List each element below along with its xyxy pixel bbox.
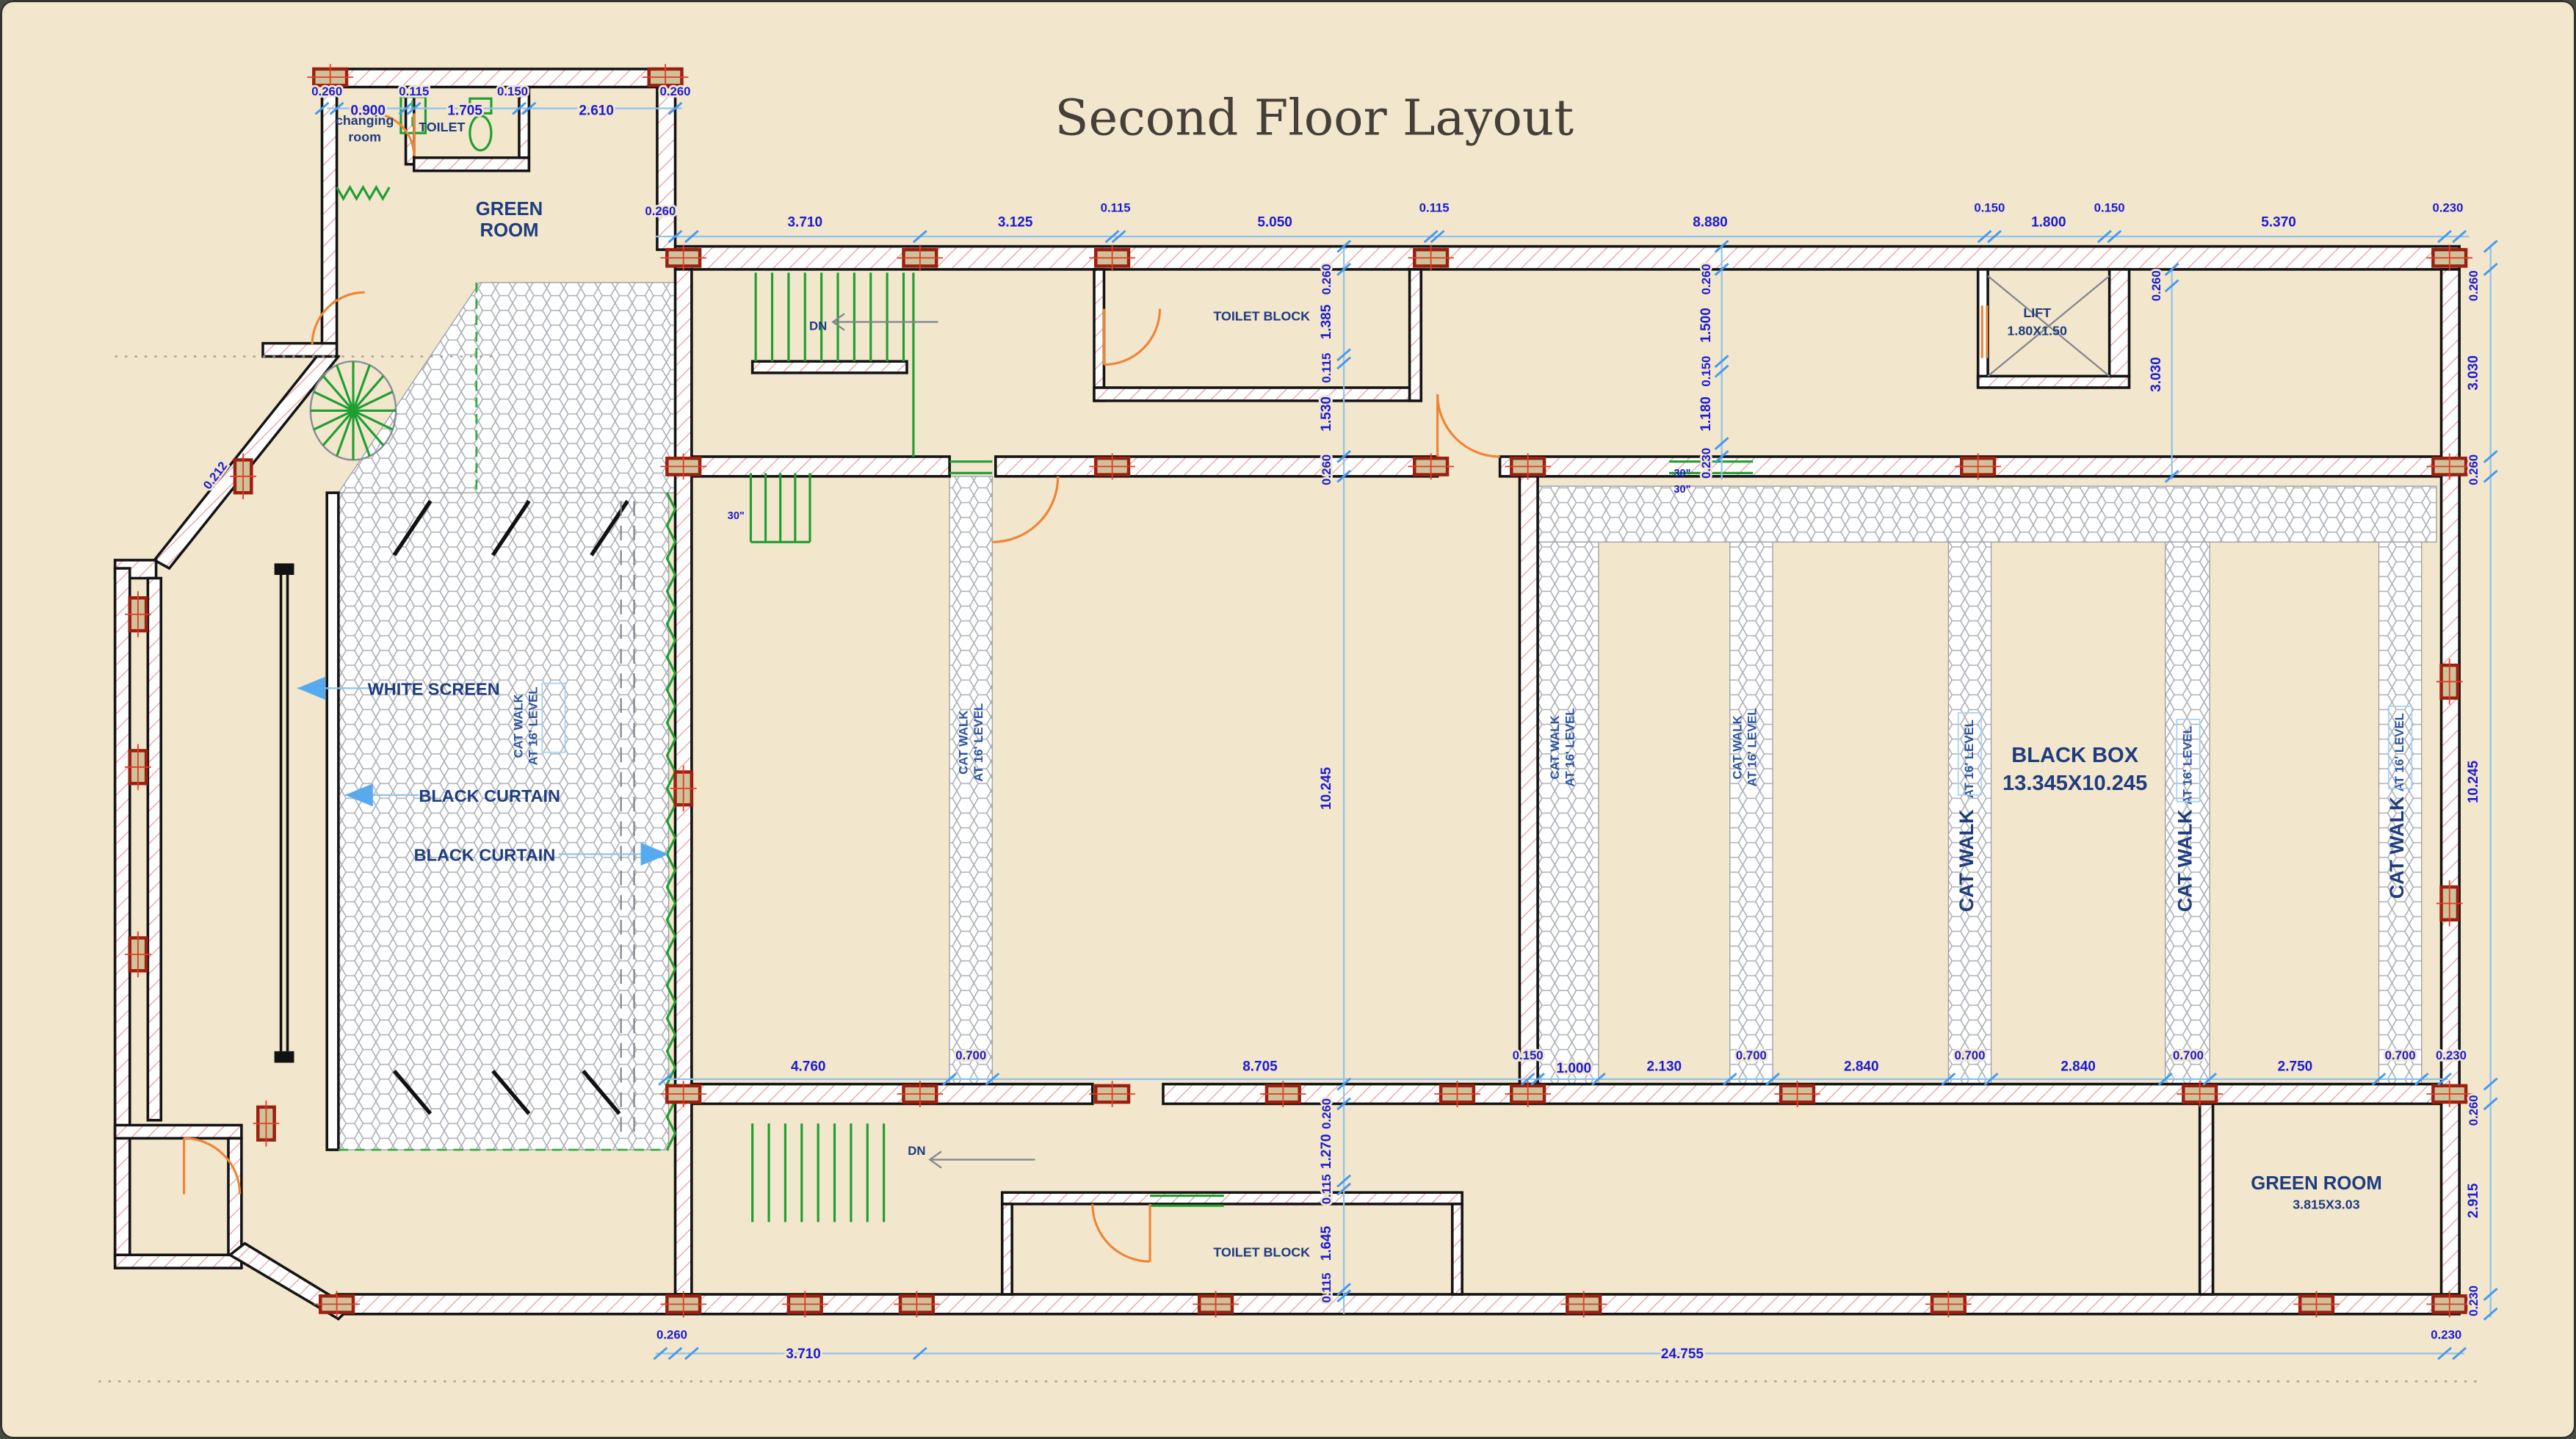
label-lift: LIFT	[2023, 305, 2051, 320]
dim-label: 5.050	[1257, 215, 1292, 231]
label-changing-room: changing	[336, 113, 394, 128]
dim-label: 0.260	[656, 1327, 687, 1341]
label-catwalk: CAT WALK	[511, 694, 525, 758]
label-riser: 30"	[1674, 484, 1690, 496]
dim-label: 0.230	[2433, 201, 2464, 215]
dim-label: 2.750	[2278, 1059, 2313, 1075]
dim-label: 2.915	[2466, 1183, 2481, 1218]
dim-label: 0.150	[1974, 201, 2005, 215]
dim-label: 5.370	[2261, 215, 2296, 231]
dim-label: 0.260	[1320, 1098, 1334, 1129]
dim-label: 0.700	[2385, 1048, 2416, 1062]
dim-label: 8.880	[1693, 215, 1728, 231]
dim-label: 3.030	[2149, 357, 2164, 392]
dim-label: 1.270	[1319, 1134, 1334, 1170]
dim-label: 0.230	[2431, 1327, 2461, 1341]
dim-label: 0.150	[1513, 1048, 1544, 1062]
catwalk-hatch-areas	[339, 283, 2436, 1150]
dim-label: 0.260	[1320, 454, 1334, 485]
label-catwalk-level: AT 16' LEVEL	[2392, 713, 2406, 791]
label-catwalk: CAT WALK	[2174, 809, 2196, 912]
dim-label: 4.760	[791, 1059, 826, 1075]
label-black-curtain: BLACK CURTAIN	[419, 786, 560, 805]
label-white-screen: WHITE SCREEN	[368, 679, 500, 698]
floor-plan: 0.260 0.900 0.115 1.705 0.150 2.610 0.26…	[0, 0, 2576, 1439]
label-riser: 30"	[1674, 468, 1690, 479]
dim-label: 0.230	[2436, 1048, 2467, 1062]
label-catwalk-level: AT 16' LEVEL	[1962, 719, 1976, 798]
label-catwalk: AT 16' LEVEL	[972, 703, 985, 782]
dim-label: 1.705	[447, 104, 482, 119]
label-toilet: TOILET	[419, 120, 465, 134]
dim-label: 0.115	[1320, 1272, 1334, 1302]
label-catwalk: CAT WALK	[2386, 796, 2408, 899]
label-catwalk: CAT WALK	[1548, 715, 1562, 779]
dim-label: 0.115	[1419, 201, 1450, 215]
dim-label: 0.260	[311, 84, 342, 98]
dim-label: 0.260	[645, 204, 676, 218]
label-green-room-top: ROOM	[480, 220, 539, 241]
drawing-sheet: 0.260 0.900 0.115 1.705 0.150 2.610 0.26…	[0, 0, 2576, 1439]
label-catwalk: AT 16' LEVEL	[1563, 708, 1577, 786]
dim-label: 1.385	[1319, 304, 1334, 339]
dim-label: 0.260	[2467, 454, 2481, 485]
dim-label: 0.230	[1699, 448, 1713, 479]
dim-label: 0.700	[1736, 1048, 1767, 1062]
dim-label: 0.700	[1954, 1048, 1985, 1062]
dim-label: 0.260	[1320, 264, 1334, 294]
dim-label: 10.245	[1319, 766, 1334, 810]
label-catwalk: CAT WALK	[957, 711, 971, 775]
staircase-mid-small	[750, 473, 810, 542]
label-lift-size: 1.80X1.50	[2007, 323, 2067, 338]
dim-label: 0.115	[1101, 201, 1131, 215]
label-green-room-top: GREEN	[476, 199, 543, 220]
label-toilet-block-bottom: TOILET BLOCK	[1213, 1244, 1310, 1259]
dim-label: 0.260	[2149, 270, 2163, 301]
staircase-bottom	[753, 1123, 884, 1222]
dim-label: 3.030	[2466, 355, 2481, 391]
label-catwalk: AT 16' LEVEL	[1745, 708, 1759, 786]
dim-label: 0.260	[660, 84, 691, 98]
dim-label: 24.755	[1661, 1346, 1704, 1362]
label-catwalk: CAT WALK	[1730, 715, 1744, 779]
label-green-room-bottom-size: 3.815X3.03	[2293, 1197, 2360, 1212]
dim-label: 0.230	[2467, 1286, 2481, 1316]
dim-label: 0.115	[399, 84, 429, 98]
dim-label: 0.700	[2173, 1048, 2204, 1062]
dim-label: 1.800	[2031, 215, 2066, 231]
label-green-room-bottom: GREEN ROOM	[2251, 1173, 2382, 1194]
label-down: DN	[809, 319, 827, 333]
dim-label: 1.530	[1319, 396, 1334, 432]
arrow-left-icon	[297, 677, 325, 700]
dim-label: 2.840	[2061, 1059, 2096, 1075]
label-toilet-block-top: TOILET BLOCK	[1213, 308, 1310, 323]
dim-label: 1.645	[1319, 1225, 1334, 1261]
dim-label: 0.115	[1320, 353, 1334, 383]
dim-label: 0.150	[1699, 356, 1713, 387]
dim-label: 0.260	[2467, 1095, 2481, 1126]
dim-label: 3.710	[787, 215, 822, 231]
dim-label: 1.500	[1698, 308, 1714, 343]
dim-label: 10.245	[2466, 760, 2481, 803]
dim-label: 0.260	[2467, 270, 2481, 301]
spiral-stair	[311, 361, 396, 460]
dim-label: 0.260	[1699, 264, 1713, 294]
dim-label: 1.000	[1557, 1061, 1592, 1076]
label-riser: 30"	[728, 510, 745, 522]
label-down: DN	[908, 1144, 925, 1158]
dim-label: 2.610	[579, 104, 614, 119]
label-catwalk-level: AT 16' LEVEL	[2180, 726, 2194, 805]
label-catwalk: AT 16' LEVEL	[527, 686, 540, 765]
dim-label: 2.840	[1844, 1059, 1879, 1075]
label-changing-room: room	[348, 129, 381, 144]
label-black-curtain: BLACK CURTAIN	[414, 845, 556, 864]
dim-label: 0.115	[1320, 1174, 1334, 1204]
dim-label: 0.150	[497, 84, 528, 98]
label-catwalk: CAT WALK	[1955, 809, 1978, 912]
catwalk-labels: CAT WALK AT 16' LEVEL CAT WALK AT 16' LE…	[511, 684, 2412, 912]
dim-label: 2.130	[1647, 1059, 1682, 1075]
dim-label: 3.125	[998, 215, 1033, 231]
page-title: Second Floor Layout	[1055, 89, 1574, 146]
dim-label: 0.700	[955, 1048, 986, 1062]
label-black-box-size: 13.345X10.245	[2002, 772, 2147, 795]
label-black-box: BLACK BOX	[2011, 744, 2138, 767]
dim-label: 8.705	[1242, 1059, 1278, 1075]
dim-label: 1.180	[1698, 396, 1714, 432]
dim-label: 3.710	[786, 1346, 821, 1362]
dim-label: 0.150	[2094, 201, 2125, 215]
